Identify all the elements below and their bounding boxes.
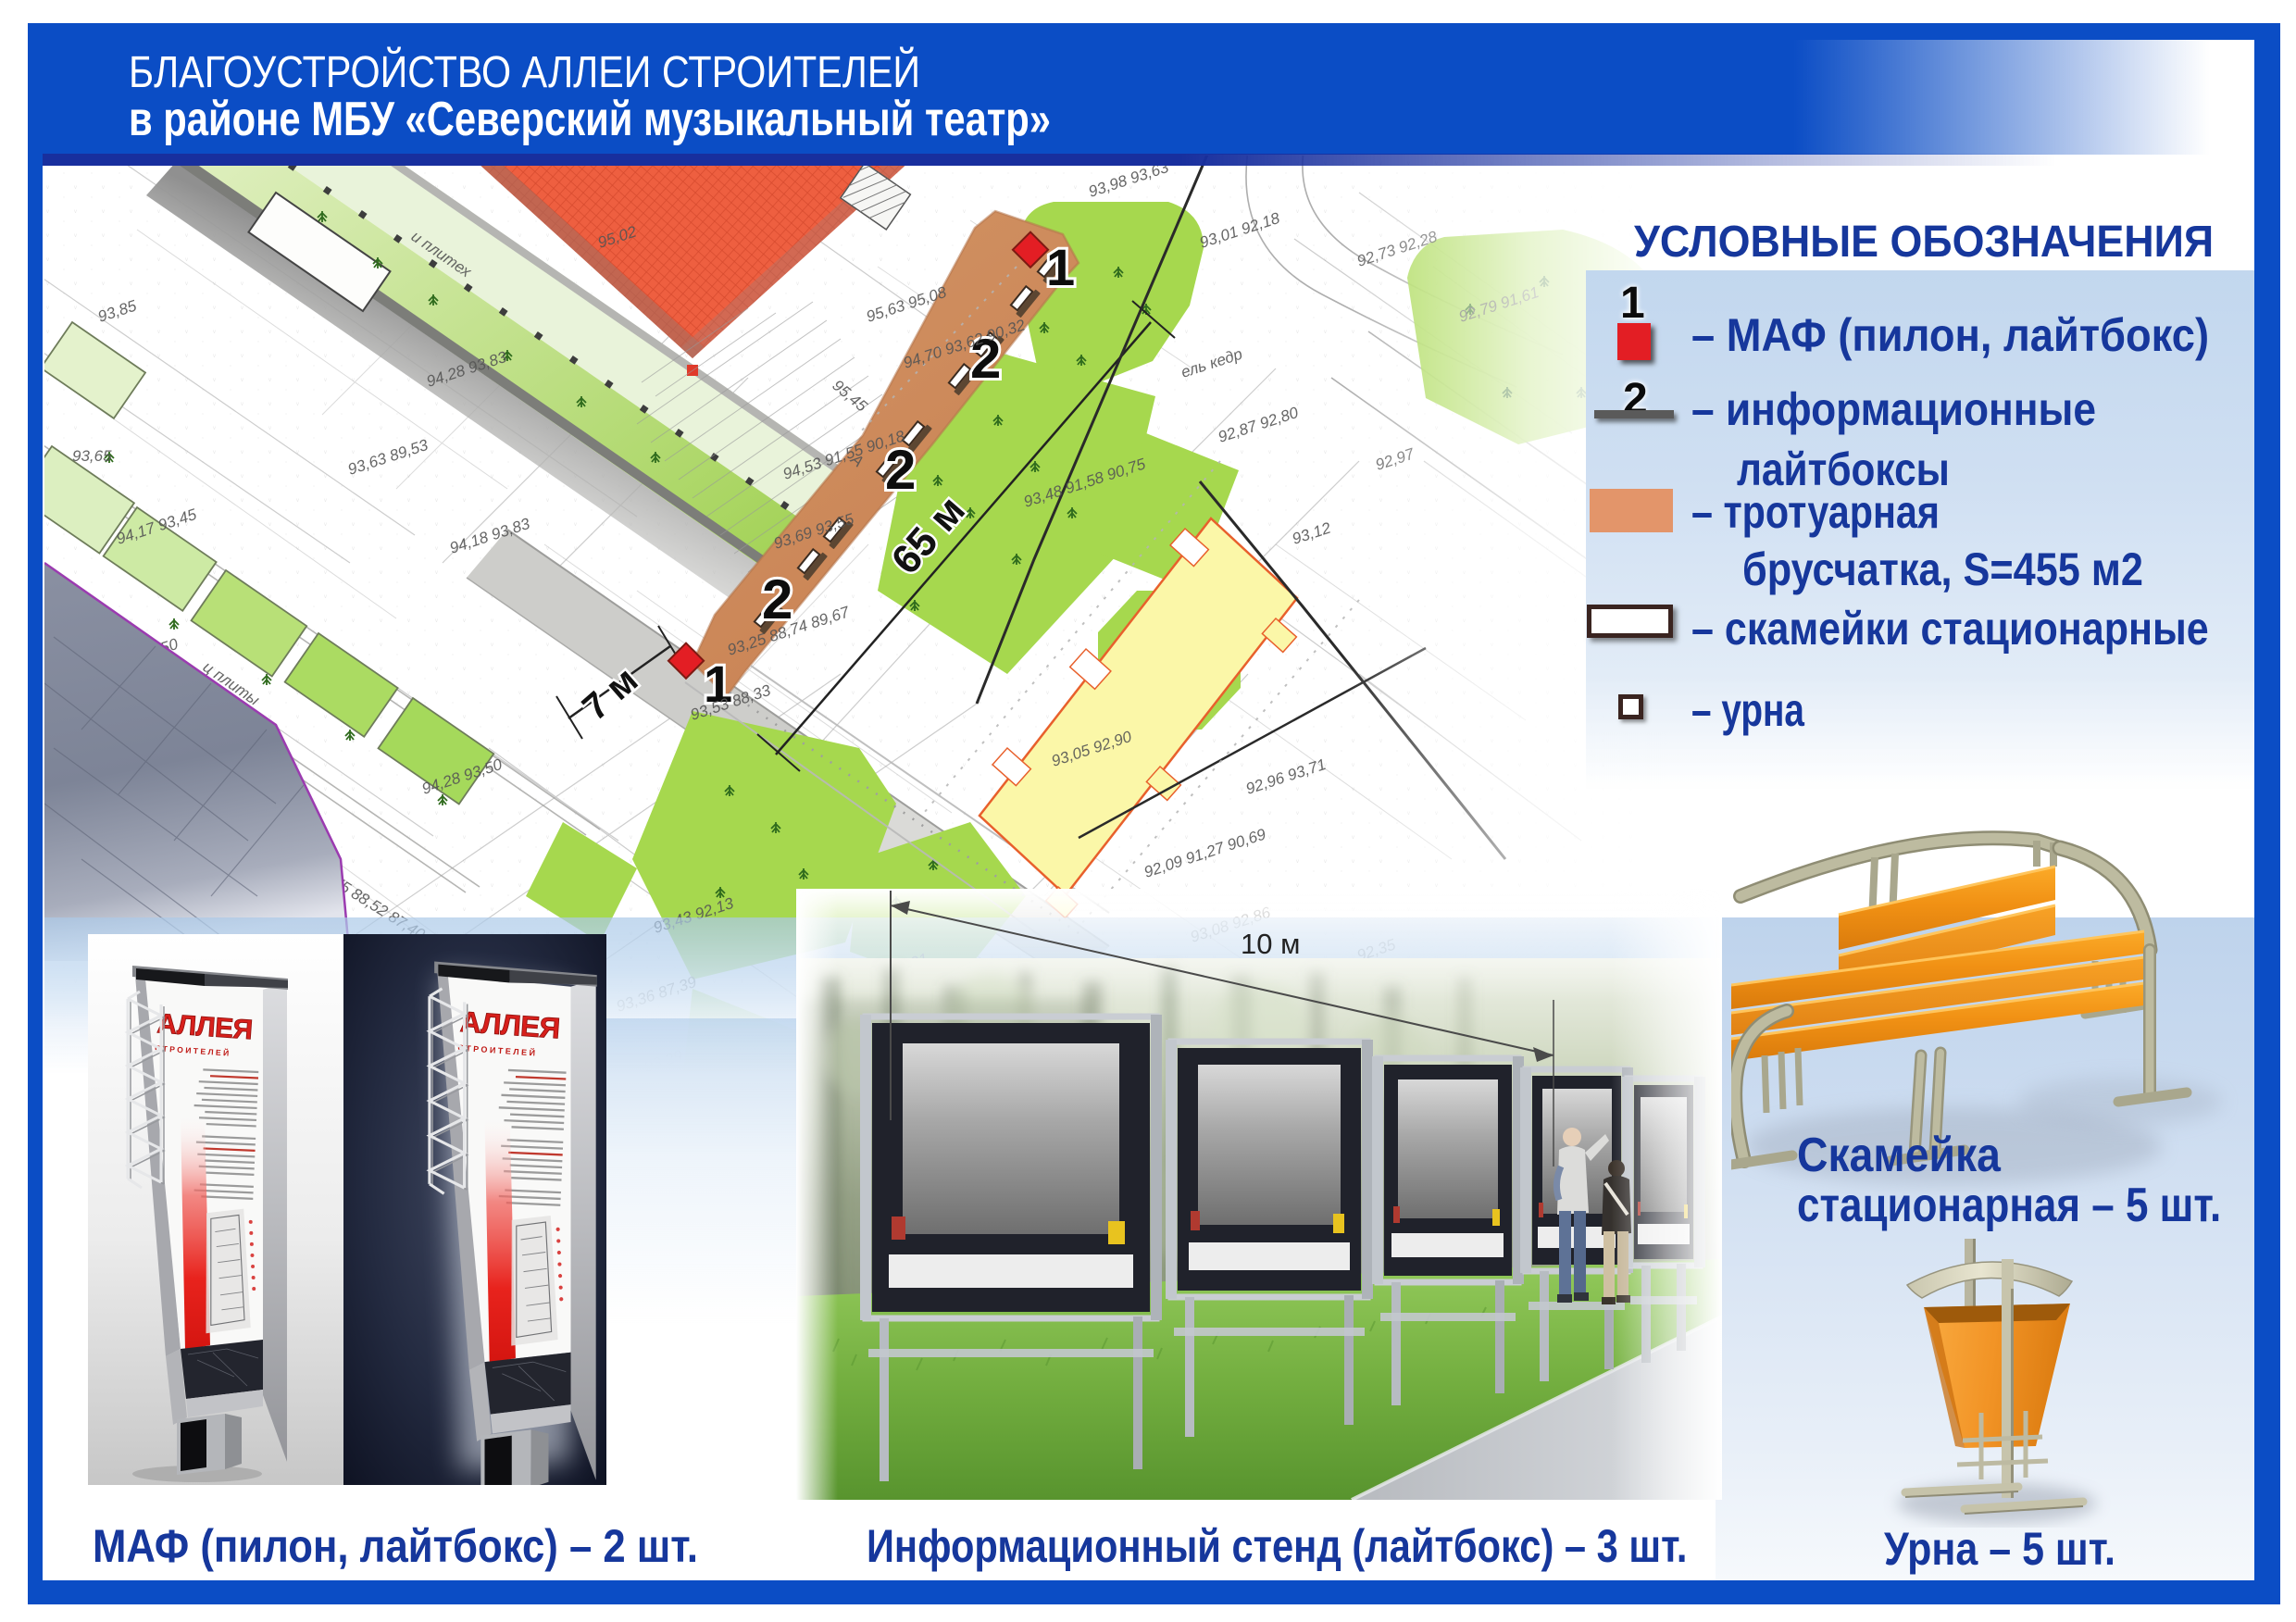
svg-text:10 м: 10 м [1241, 928, 1300, 960]
svg-text:АЛЛЕЯ: АЛЛЕЯ [459, 1005, 561, 1044]
